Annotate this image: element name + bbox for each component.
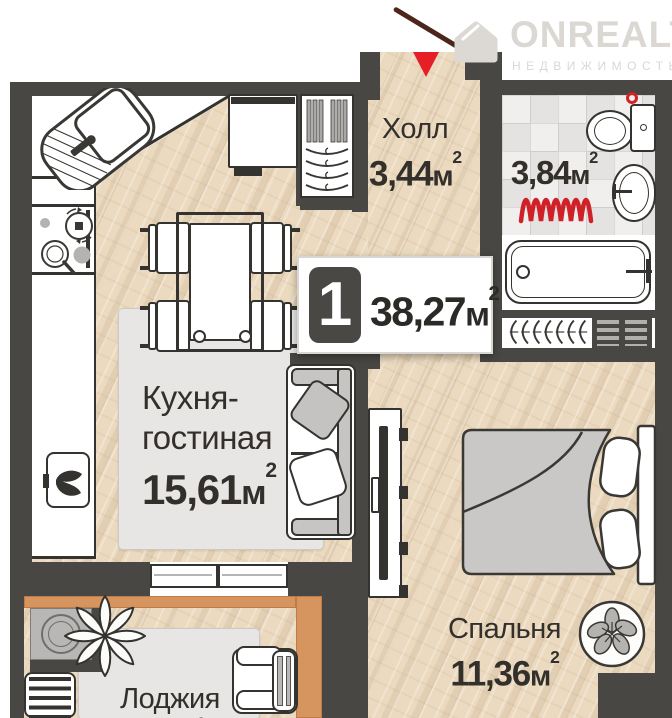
chair-leg <box>140 266 148 270</box>
armchair-cushion <box>286 656 291 706</box>
window-glass-line <box>222 574 282 576</box>
loggia-label: Лоджия <box>96 682 244 716</box>
dining-table <box>189 223 251 341</box>
wardrobe-contents-icon <box>302 96 352 196</box>
tv-bracket <box>371 477 380 513</box>
entrance-arrow-icon <box>413 52 439 77</box>
room-count-badge: 1 <box>309 267 361 343</box>
fridge <box>228 94 298 168</box>
wall-segment <box>300 198 362 210</box>
tv-stand-knob <box>399 542 408 555</box>
bedroom-plant-icon <box>576 598 648 670</box>
balcony-wall <box>296 596 322 718</box>
chair-leg <box>140 228 148 232</box>
radiator-fins <box>29 677 71 718</box>
room-name: Кухня- <box>142 378 317 418</box>
dining-chair <box>283 302 292 350</box>
appliance-icon <box>50 462 86 498</box>
bathroom-label: 3,84м2 <box>498 146 610 196</box>
room-name: гостиная <box>142 418 317 458</box>
wall-segment <box>598 673 672 718</box>
room-area: 4,2м2 <box>96 712 244 718</box>
tv <box>379 426 388 580</box>
fridge-base <box>234 168 262 176</box>
onrealt-logo: ONREALT НЕДВИЖИМОСТЬ <box>450 12 672 78</box>
double-bed <box>458 422 658 592</box>
room-name: Спальня <box>432 612 577 646</box>
sink-tap <box>613 184 616 199</box>
wall-segment <box>10 96 32 562</box>
kitchen-living-label: Кухня- гостиная 15,61м2 <box>142 378 317 518</box>
tv-stand-knob <box>399 486 408 499</box>
room-area: 15,61м2 <box>142 458 317 518</box>
room-area: 3,44м2 <box>355 146 475 198</box>
chair-leg <box>140 306 148 310</box>
summary-badge: 1 38,27м2 <box>297 256 493 354</box>
tv-stand-knob <box>399 585 408 598</box>
room-area: 3,84м2 <box>498 146 610 196</box>
room-name: Холл <box>355 112 475 146</box>
loggia-plant-icon <box>62 590 148 678</box>
house-icon <box>450 16 502 68</box>
window-glass-line <box>154 574 212 576</box>
bedroom-label: Спальня 11,36м2 <box>432 612 577 698</box>
armchair-backrest <box>272 650 296 712</box>
bathtub-drain <box>516 265 530 279</box>
wall-segment <box>10 596 24 718</box>
tableware-icon <box>239 330 252 343</box>
wall-segment <box>288 562 368 596</box>
closet-hangers-icon <box>504 316 592 348</box>
bathroom-sink-inner <box>619 172 649 214</box>
bathtub-inner <box>511 246 645 298</box>
floor-plan: Холл 3,44м2 3,84м2 Кухня- гостиная 15,61… <box>0 0 672 718</box>
chair-leg <box>292 228 300 232</box>
towel-warmer-icon <box>518 196 598 226</box>
window-mullion <box>216 564 220 588</box>
room-name: Лоджия <box>96 682 244 716</box>
brand-name: ONREALT <box>510 14 672 56</box>
bathtub-tap <box>646 259 649 283</box>
total-area: 38,27м2 <box>370 258 498 352</box>
counter-divider <box>32 556 96 559</box>
shelf-stack <box>597 320 619 346</box>
toilet-bowl-inner <box>594 117 626 145</box>
sink-tap <box>616 190 632 193</box>
wall-segment <box>655 80 672 718</box>
tableware-icon <box>193 330 206 343</box>
stove-cooktop-icon <box>34 206 94 274</box>
tv-stand-knob <box>399 428 408 441</box>
hall-label: Холл 3,44м2 <box>355 112 475 198</box>
wall-segment <box>502 80 672 95</box>
shelf-stack <box>625 320 647 346</box>
chair-leg <box>140 344 148 348</box>
brand-tagline: НЕДВИЖИМОСТЬ <box>512 59 672 73</box>
fridge-top <box>231 97 295 104</box>
appliance-tab <box>43 474 49 488</box>
kitchen-sink-icon <box>34 88 160 190</box>
dining-chair <box>283 224 292 272</box>
toilet-button <box>640 124 647 131</box>
wall-segment <box>322 596 368 718</box>
room-area: 11,36м2 <box>432 646 577 698</box>
water-valve-icon <box>626 92 638 104</box>
loggia-area-label: 4,2м2 <box>96 712 244 718</box>
armchair-cushion <box>277 656 283 706</box>
